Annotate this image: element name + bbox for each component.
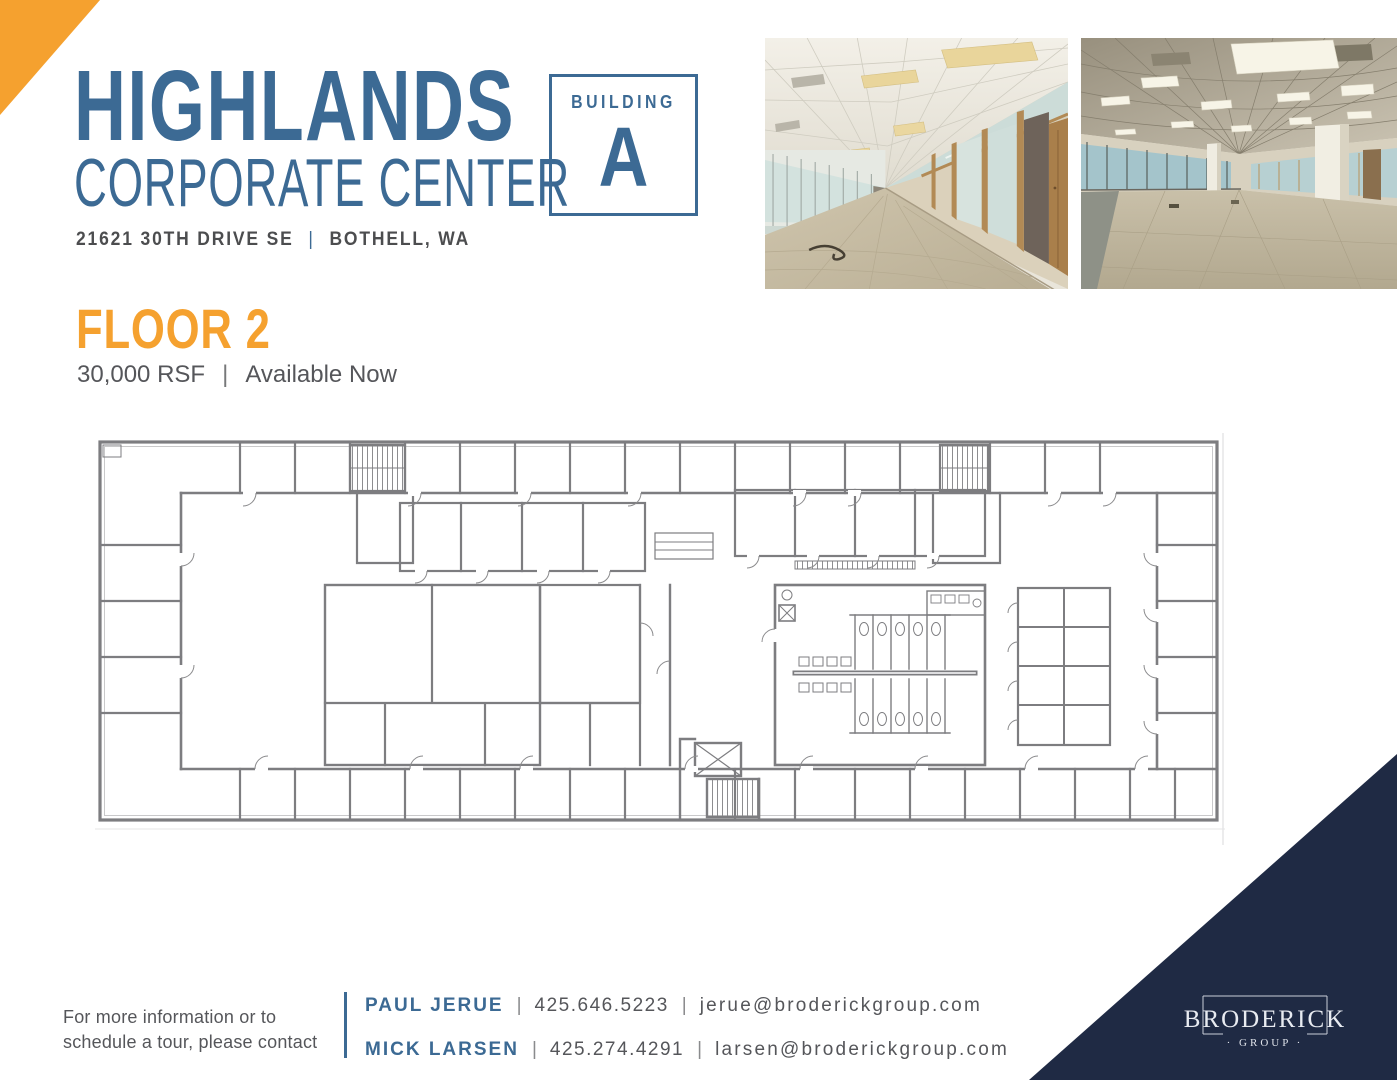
flyer-page: HIGHLANDS CORPORATE CENTER 21621 30TH DR…	[0, 0, 1397, 1080]
contact-separator: |	[669, 995, 700, 1016]
contact-separator: |	[504, 995, 535, 1016]
floor-availability: Available Now	[245, 361, 397, 388]
contact-divider	[344, 992, 347, 1058]
contact-row-mick-larsen: MICK LARSEN|425.274.4291|larsen@broderic…	[365, 1039, 1009, 1061]
footer-note-line1: For more information or to	[63, 1005, 317, 1030]
floor-details: 30,000 RSF|Available Now	[77, 361, 397, 389]
floor-title: FLOOR 2	[76, 301, 271, 357]
navy-corner-decoration: BRODERICK · GROUP ·	[1027, 750, 1397, 1080]
contact-name: MICK LARSEN	[365, 1039, 519, 1060]
interior-photo-open-space	[1081, 38, 1397, 289]
address-separator: |	[294, 229, 330, 250]
contact-separator: |	[684, 1039, 715, 1060]
contact-phone: 425.274.4291	[550, 1039, 684, 1060]
contact-separator: |	[519, 1039, 550, 1060]
broderick-logo-text: BRODERICK	[1184, 1006, 1346, 1033]
contact-row-paul-jerue: PAUL JERUE|425.646.5223|jerue@broderickg…	[365, 995, 982, 1017]
floor-rsf: 30,000 RSF	[77, 361, 205, 388]
interior-photo-corridor	[765, 38, 1068, 289]
address-street: 21621 30TH DRIVE SE	[76, 229, 294, 250]
building-badge: BUILDING A	[549, 74, 698, 216]
brand-title: HIGHLANDS	[74, 56, 515, 156]
contact-name: PAUL JERUE	[365, 995, 504, 1016]
brand-subtitle: CORPORATE CENTER	[74, 149, 570, 217]
footer-note: For more information or to schedule a to…	[63, 1005, 317, 1055]
building-badge-letter: A	[565, 115, 682, 199]
address-city: BOTHELL, WA	[329, 229, 470, 250]
contact-email-link[interactable]: larsen@broderickgroup.com	[715, 1039, 1009, 1060]
broderick-logo-subtext: · GROUP ·	[1227, 1037, 1304, 1049]
address-line: 21621 30TH DRIVE SE|BOTHELL, WA	[76, 229, 470, 251]
footer-note-line2: schedule a tour, please contact	[63, 1030, 317, 1055]
floor-separator: |	[205, 361, 245, 388]
contact-email-link[interactable]: jerue@broderickgroup.com	[700, 995, 982, 1016]
contact-phone: 425.646.5223	[535, 995, 669, 1016]
